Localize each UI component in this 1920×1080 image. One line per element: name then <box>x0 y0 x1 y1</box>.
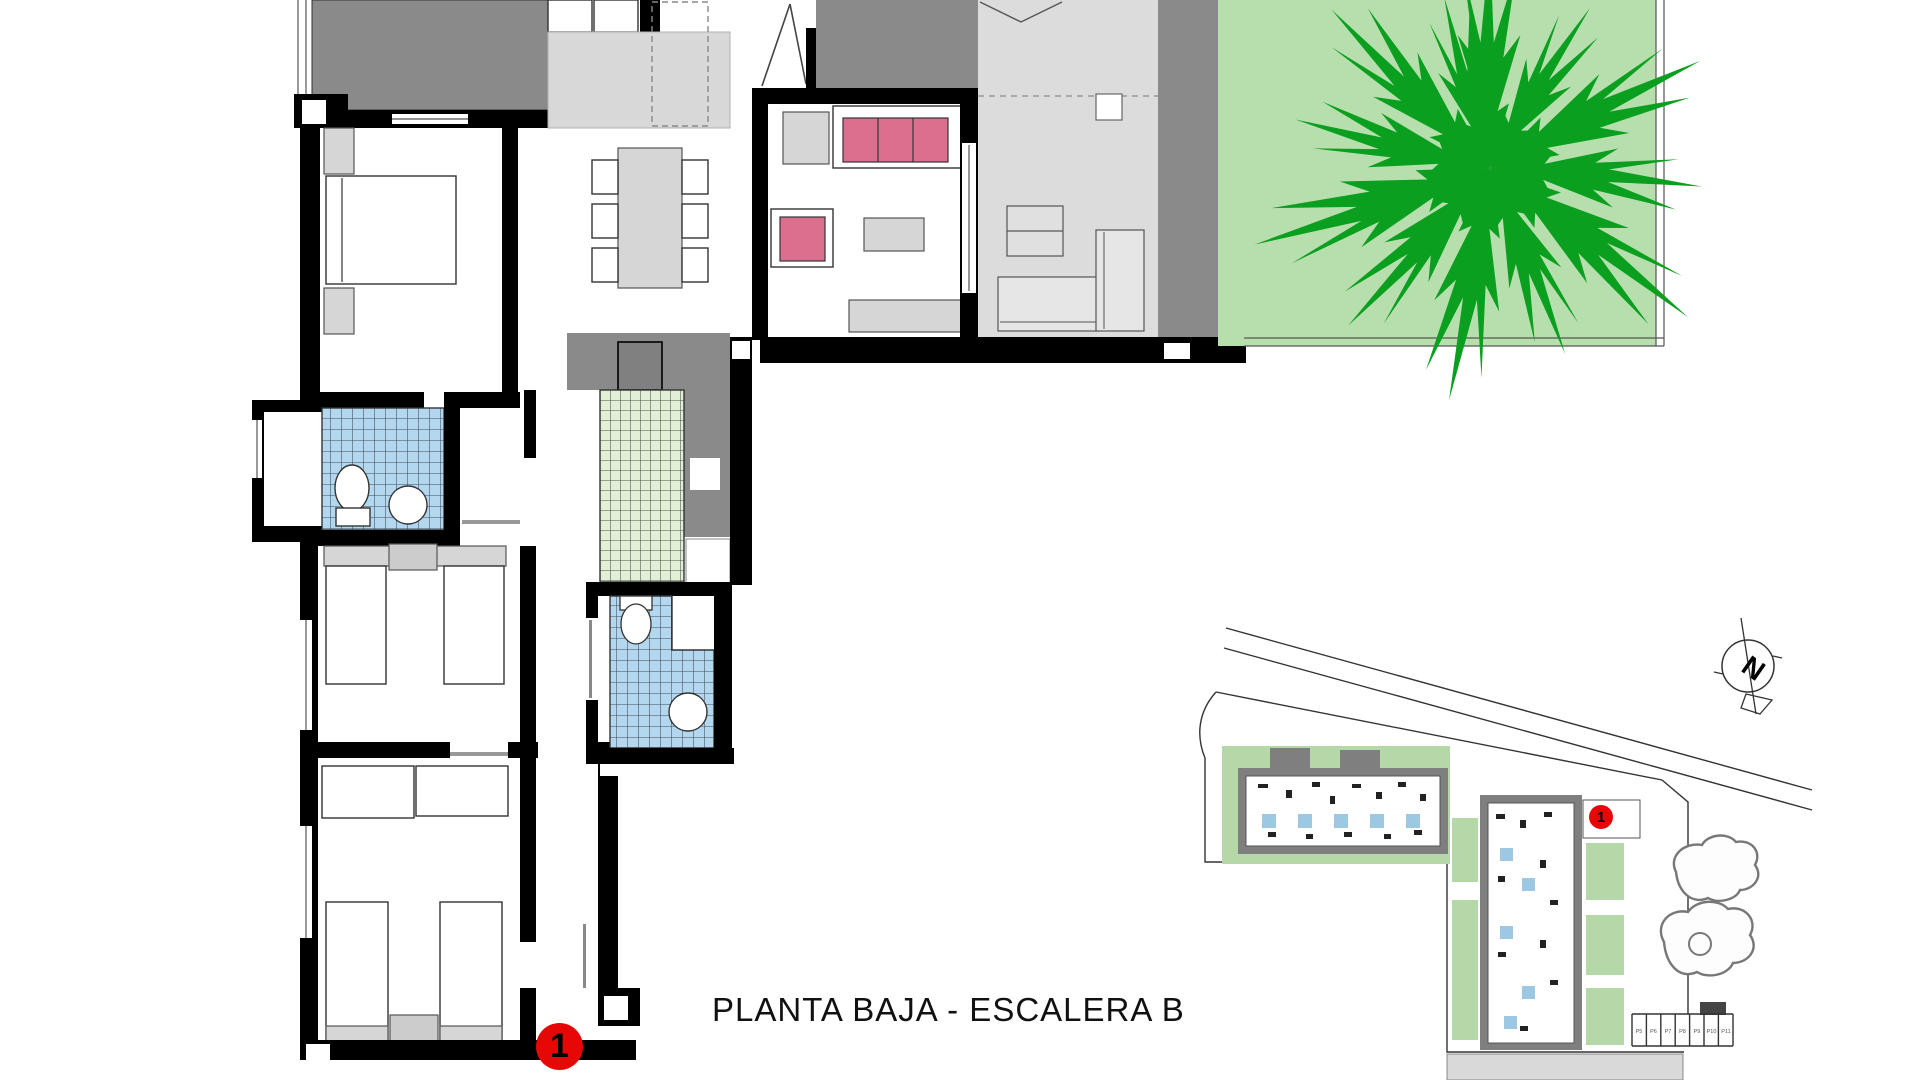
entrance-door <box>762 4 816 88</box>
unit-marker-main-label: 1 <box>550 1027 569 1066</box>
north-compass-icon: N <box>1714 618 1782 714</box>
site-building-a <box>1222 746 1450 864</box>
bedroom-3 <box>300 742 636 1060</box>
washbasin <box>389 486 427 524</box>
floor-plan-page: P5 P6 P7 P8 P9 P10 P11 N PLANTA BAJA - E… <box>0 0 1920 1080</box>
unit-marker-site: 1 <box>1589 805 1613 829</box>
terrace-top-left <box>294 0 550 128</box>
toilet <box>621 604 651 644</box>
planter <box>618 342 662 390</box>
single-bed <box>326 566 386 684</box>
svg-text:P8: P8 <box>1679 1029 1686 1035</box>
dining-table <box>618 148 682 288</box>
living-room <box>752 0 978 340</box>
side-table <box>783 112 829 164</box>
single-bed <box>444 566 504 684</box>
wardrobe <box>416 766 508 816</box>
dining-area <box>592 148 708 288</box>
armchair <box>780 217 825 261</box>
site-parking: P5 P6 P7 P8 P9 P10 P11 <box>1632 1002 1733 1046</box>
site-building-b <box>1452 795 1640 1050</box>
bedroom-1 <box>300 126 520 408</box>
patio <box>524 333 752 585</box>
bathroom-1 <box>252 398 520 546</box>
svg-text:P10: P10 <box>1707 1029 1717 1035</box>
svg-text:P9: P9 <box>1694 1029 1701 1035</box>
sideboard <box>849 300 961 332</box>
compass-north-label: N <box>1736 650 1770 687</box>
svg-text:P7: P7 <box>1665 1029 1672 1035</box>
washbasin <box>669 693 707 731</box>
outdoor-sofa <box>998 277 1098 331</box>
kitchen <box>548 0 730 128</box>
svg-text:P11: P11 <box>1721 1029 1730 1035</box>
unit-marker-main: 1 <box>536 1023 583 1070</box>
unit-marker-site-label: 1 <box>1597 809 1605 826</box>
sofa <box>843 118 948 162</box>
nightstand <box>324 288 354 334</box>
toilet <box>335 465 369 511</box>
site-pool <box>1661 836 1758 976</box>
parking-labels: P5 P6 P7 P8 P9 P10 P11 <box>1636 1029 1731 1035</box>
bathroom-2 <box>586 582 734 764</box>
double-bed <box>326 176 456 284</box>
garden <box>1218 0 1715 406</box>
floor-plan-canvas: P5 P6 P7 P8 P9 P10 P11 N <box>0 0 1920 1080</box>
bedroom-2 <box>300 544 536 752</box>
plan-title: PLANTA BAJA - ESCALERA B <box>712 991 1185 1029</box>
coffee-table <box>864 218 924 251</box>
single-bed <box>326 902 388 1044</box>
terrace-main <box>978 0 1218 337</box>
corridor <box>520 742 640 1044</box>
svg-text:P5: P5 <box>1636 1029 1643 1035</box>
single-bed <box>440 902 502 1044</box>
svg-text:P6: P6 <box>1650 1029 1657 1035</box>
nightstand <box>324 128 354 174</box>
site-plan: P5 P6 P7 P8 P9 P10 P11 N <box>1200 618 1812 1080</box>
wardrobe <box>322 766 414 818</box>
